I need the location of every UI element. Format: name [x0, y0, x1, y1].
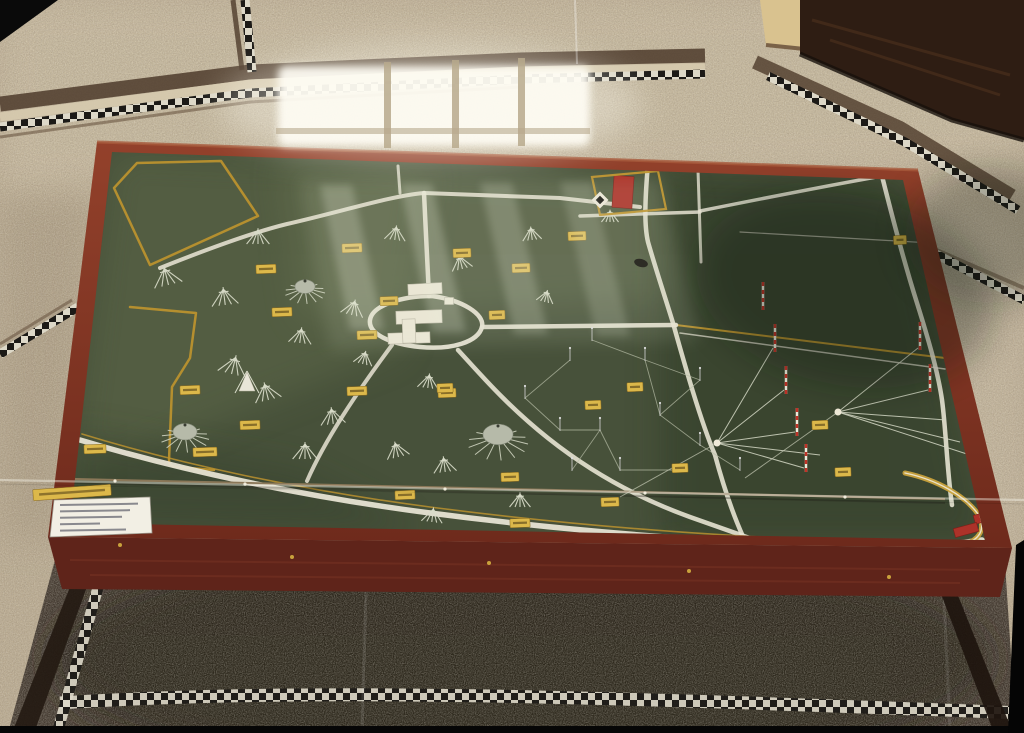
map-label [601, 497, 619, 507]
map-label [510, 518, 530, 528]
scene-canvas [0, 0, 1024, 733]
map-label [84, 444, 106, 454]
map-label [240, 420, 260, 430]
map-label [627, 382, 643, 392]
map-label [347, 386, 367, 396]
map-label [272, 307, 292, 317]
photograph [0, 0, 1024, 733]
map-label [672, 463, 688, 473]
map-label [585, 400, 601, 410]
window-reflection-on-glass [300, 178, 700, 350]
map-label [256, 264, 276, 274]
map-label [193, 447, 217, 457]
map-label [835, 467, 851, 477]
photo-edge-bottom [0, 726, 1024, 733]
map-label [437, 383, 453, 393]
map-label [812, 420, 828, 430]
map-label [180, 385, 200, 395]
map-label [501, 472, 519, 482]
